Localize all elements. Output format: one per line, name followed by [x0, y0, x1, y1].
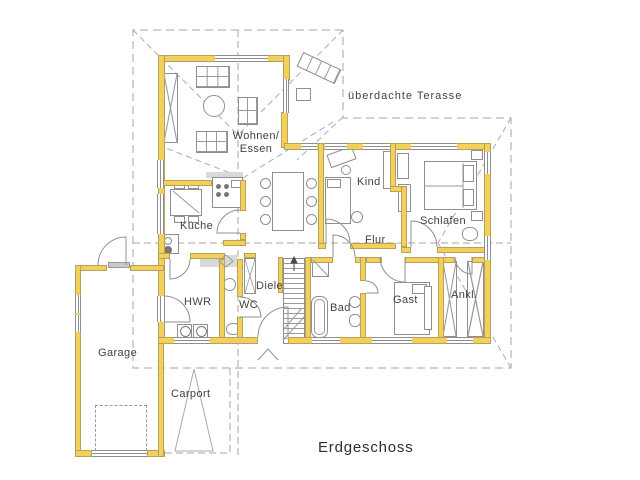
room-label-carport: Carport — [171, 388, 210, 401]
room-label-ankl: Ankl. — [451, 289, 477, 302]
room-label-kind: Kind — [357, 176, 381, 189]
floor-plan: Wohnen/Essen Küche Kind Schlafen Flur HW… — [0, 0, 640, 480]
room-label-wohnen-essen: Wohnen/Essen — [224, 130, 288, 156]
stair-direction-arrow — [291, 257, 297, 271]
room-label-schlafen: Schlafen — [420, 215, 466, 228]
shower-diagonal — [313, 260, 328, 276]
page-title: Erdgeschoss — [318, 441, 414, 454]
bed-divider-line — [424, 163, 463, 208]
room-label-flur: Flur — [365, 234, 386, 247]
vent-symbol — [219, 255, 233, 267]
terrace-label: überdachte Terasse — [348, 90, 462, 103]
room-label-bad: Bad — [330, 302, 351, 315]
plan-symbols — [0, 0, 640, 480]
door-swing-arcs — [98, 210, 472, 337]
room-label-gast: Gast — [393, 294, 418, 307]
entrance-marker-icon — [258, 349, 278, 360]
room-label-kueche: Küche — [180, 220, 213, 233]
tree-icon — [175, 369, 213, 451]
kitchen-table-diagonal — [173, 191, 199, 213]
room-label-diele: Diele — [256, 280, 283, 293]
room-label-garage: Garage — [98, 347, 137, 360]
stair-winder-lines — [283, 308, 305, 340]
room-label-hwr: HWR — [184, 296, 211, 309]
room-label-wc: WC — [239, 299, 258, 312]
